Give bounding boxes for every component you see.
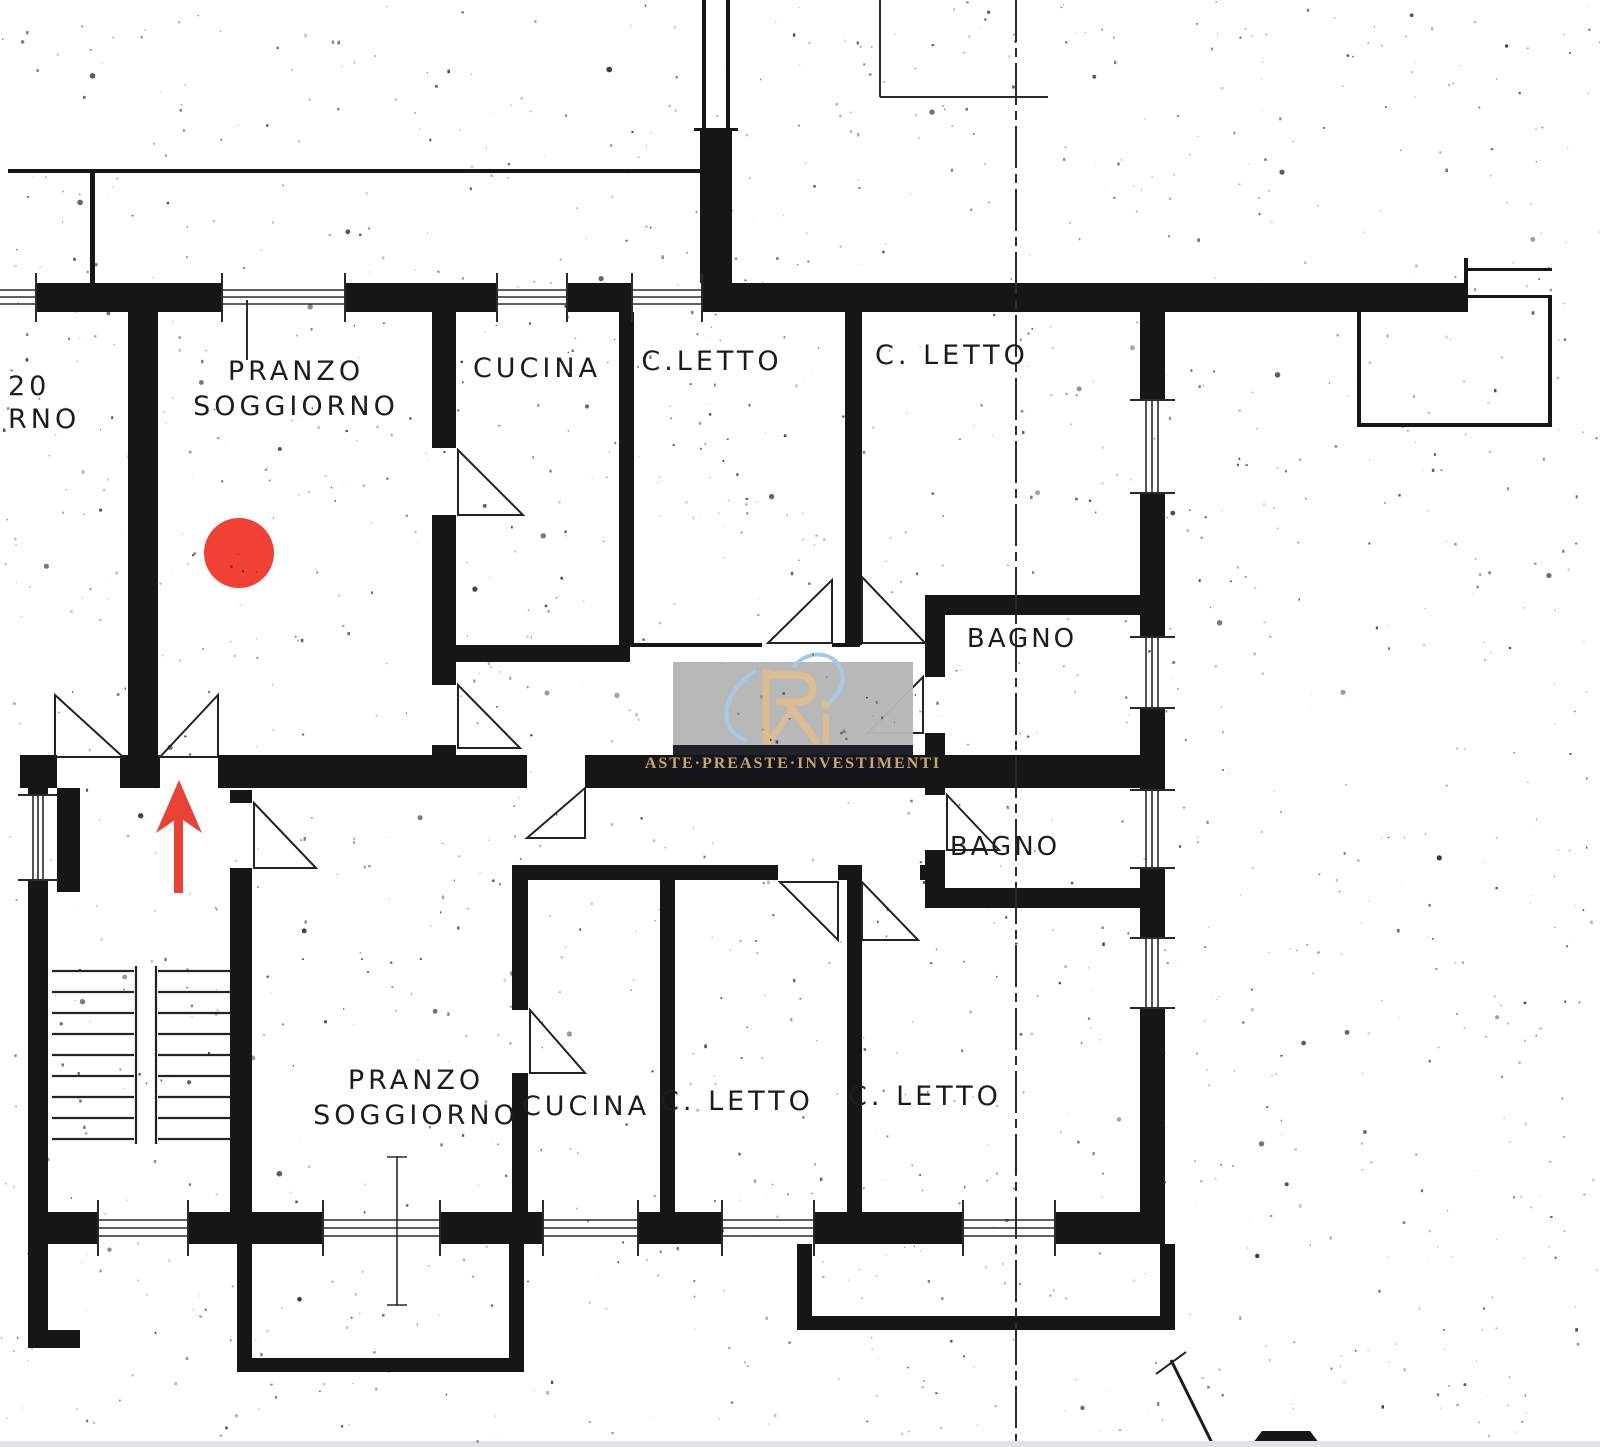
stairwell-east-wall [230, 868, 252, 1212]
staircase [52, 966, 230, 1144]
agency-watermark: ASTE·PREASTE·INVESTIMENTI [645, 655, 941, 778]
room-label-lower-cucina: CUCINA [522, 1091, 650, 1122]
upper-cucina-south-wall [432, 645, 630, 662]
window [323, 1200, 440, 1256]
stair-stringer [134, 966, 158, 1144]
window [497, 273, 567, 322]
upper-terrace-line [8, 169, 700, 173]
bagno1-west-wall [925, 733, 945, 755]
lower-cucina-cletto-wall [660, 877, 675, 1212]
right-wall-seg [1140, 493, 1165, 637]
landing-nook-wall [57, 788, 80, 892]
red-markers [156, 518, 274, 893]
door-lower-cletto2 [862, 882, 918, 940]
room-label-upper-cletto2: C. LETTO [875, 340, 1029, 371]
survey-diagonal-line [1171, 1360, 1214, 1447]
agency-watermark-text: ASTE·PREASTE·INVESTIMENTI [645, 755, 941, 772]
room-label-bagno1: BAGNO [967, 624, 1077, 654]
top-wall-seg [345, 283, 497, 312]
door-upper-cletto2 [862, 577, 925, 643]
bottom-wall-seg [1055, 1212, 1165, 1244]
bagno1-west-wall [925, 615, 945, 677]
window [18, 795, 58, 880]
jut-wall-line-left [702, 0, 706, 132]
bottom-wall-seg [638, 1212, 722, 1244]
neighbor-balcony-line [1467, 268, 1552, 271]
balcony-topright-bottom [1357, 423, 1552, 427]
room-label-cut-1: 20 [8, 371, 50, 402]
stairwell-east-wall [230, 790, 252, 803]
door-upper-cletto1 [768, 580, 832, 643]
room-label-lower-cletto2: C. LETTO [848, 1081, 1002, 1112]
balcony-topright-right [1548, 297, 1552, 427]
window [543, 1200, 638, 1256]
lower-pranzo-cucina-wall [512, 865, 528, 1010]
room-label-lower-pranzo-1: PRANZO [348, 1065, 484, 1096]
bottom-wall-seg [28, 1212, 98, 1244]
window [1130, 790, 1175, 868]
floor-plan-svg: 20 RNO PRANZO SOGGIORNO CUCINA C.LETTO C… [0, 0, 1600, 1447]
window [0, 273, 36, 322]
upper-pranzo-east-wall [432, 312, 456, 448]
room-label-upper-cucina: CUCINA [473, 353, 601, 384]
top-wall-seg [567, 283, 632, 312]
left-exterior-wall [28, 880, 48, 1348]
neighbor-balcony-line [1467, 295, 1552, 298]
upper-pranzo-east-wall [432, 745, 456, 755]
door-adjacent-entry [55, 695, 123, 757]
bagno2-south-wall [925, 888, 1165, 908]
bottom-wall-seg [814, 1212, 963, 1244]
door-upper-cucina [458, 450, 523, 515]
window [632, 273, 702, 322]
right-wall-seg [1140, 283, 1165, 400]
door-lower-cletto1 [780, 882, 838, 940]
room-label-lower-cletto1: C. LETTO [660, 1086, 814, 1117]
lower-corridor-wall [920, 865, 930, 880]
room-label-bagno2: BAGNO [950, 832, 1060, 862]
balcony-left-east [509, 1244, 524, 1372]
upper-bedroom-partition [832, 643, 860, 647]
right-wall-seg [1140, 1008, 1165, 1244]
balcony-right-east [1160, 1244, 1175, 1330]
window [1130, 637, 1175, 708]
survey-tick [1156, 1352, 1186, 1374]
window [222, 273, 345, 360]
mid-wall-seg [120, 755, 160, 788]
room-label-upper-cletto1: C.LETTO [641, 346, 782, 377]
balcony-right-south [797, 1316, 1175, 1330]
bagno2-west-wall [925, 788, 945, 795]
jut-wall-line-right [726, 0, 730, 132]
window [1130, 938, 1175, 1008]
floor-plan-scan: 20 RNO PRANZO SOGGIORNO CUCINA C.LETTO C… [0, 0, 1600, 1447]
room-label-upper-pranzo-1: PRANZO [228, 356, 364, 387]
top-wall-seg [36, 283, 222, 312]
top-wall-end-stub [1464, 258, 1468, 312]
upper-bedroom-partition [630, 643, 762, 647]
top-wall-seg [732, 283, 1467, 312]
door-lower-cucina [530, 1010, 585, 1073]
window [98, 1200, 188, 1256]
left-wall-foot [28, 1330, 80, 1348]
bottom-wall-seg [440, 1212, 543, 1244]
lower-cletto-divider-wall [847, 877, 862, 1212]
bottom-wall-seg [188, 1212, 323, 1244]
upper-cucina-cletto-wall [619, 312, 634, 645]
bagno1-north-wall [925, 595, 1165, 615]
selected-unit-dot-marker [204, 518, 274, 588]
room-label-cut-2: RNO [8, 404, 80, 435]
balcony-left-south [237, 1358, 524, 1372]
balcony-topright-left [1357, 312, 1361, 427]
upper-cletto-divider-wall [845, 312, 862, 645]
lower-corridor-wall [512, 865, 778, 880]
door-mid-wall [527, 788, 585, 838]
door-lower-pranzo [254, 803, 316, 868]
balcony-left-west [237, 1244, 252, 1372]
left-exterior-wall [28, 755, 48, 795]
entrance-arrow-shaft [174, 812, 183, 893]
door-upper-pranzo [458, 685, 520, 748]
mid-wall-seg [218, 755, 527, 788]
window [963, 1200, 1055, 1256]
window [1130, 400, 1175, 493]
room-label-lower-pranzo-2: SOGGIORNO [313, 1100, 519, 1131]
jut-wall [700, 130, 732, 312]
room-label-upper-pranzo-2: SOGGIORNO [193, 391, 399, 422]
scan-edge-strip [0, 1441, 1600, 1447]
